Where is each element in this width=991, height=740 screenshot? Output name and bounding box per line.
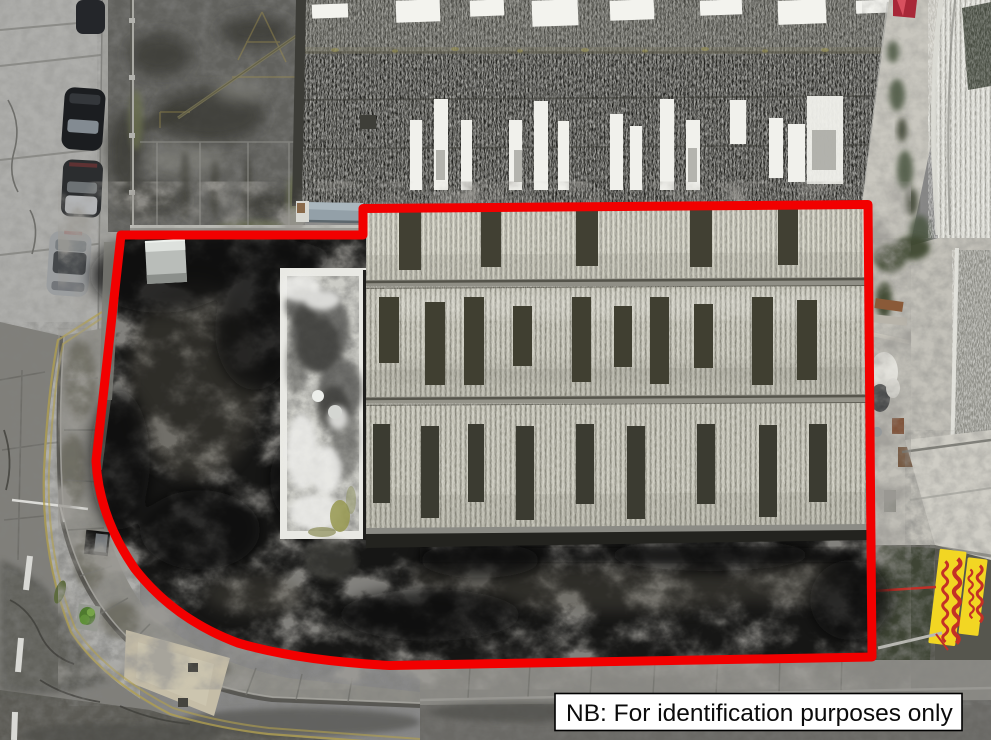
- svg-text:NB: For identification purpose: NB: For identification purposes only: [566, 700, 953, 727]
